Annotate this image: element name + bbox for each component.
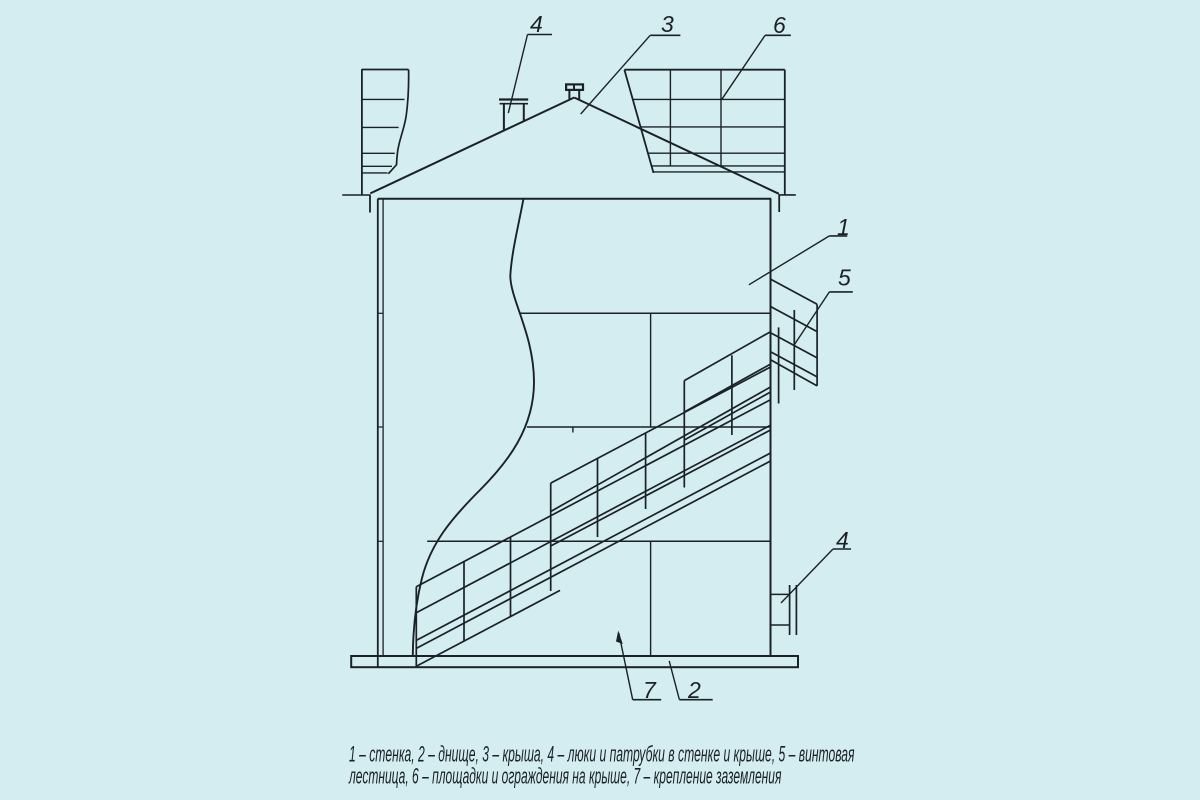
svg-text:лестница, 6 – площадки и ограж: лестница, 6 – площадки и ограждения на к… [348,764,781,789]
svg-text:3: 3 [661,11,674,37]
svg-text:5: 5 [838,265,851,291]
svg-text:6: 6 [773,12,786,38]
svg-text:4: 4 [530,11,543,37]
